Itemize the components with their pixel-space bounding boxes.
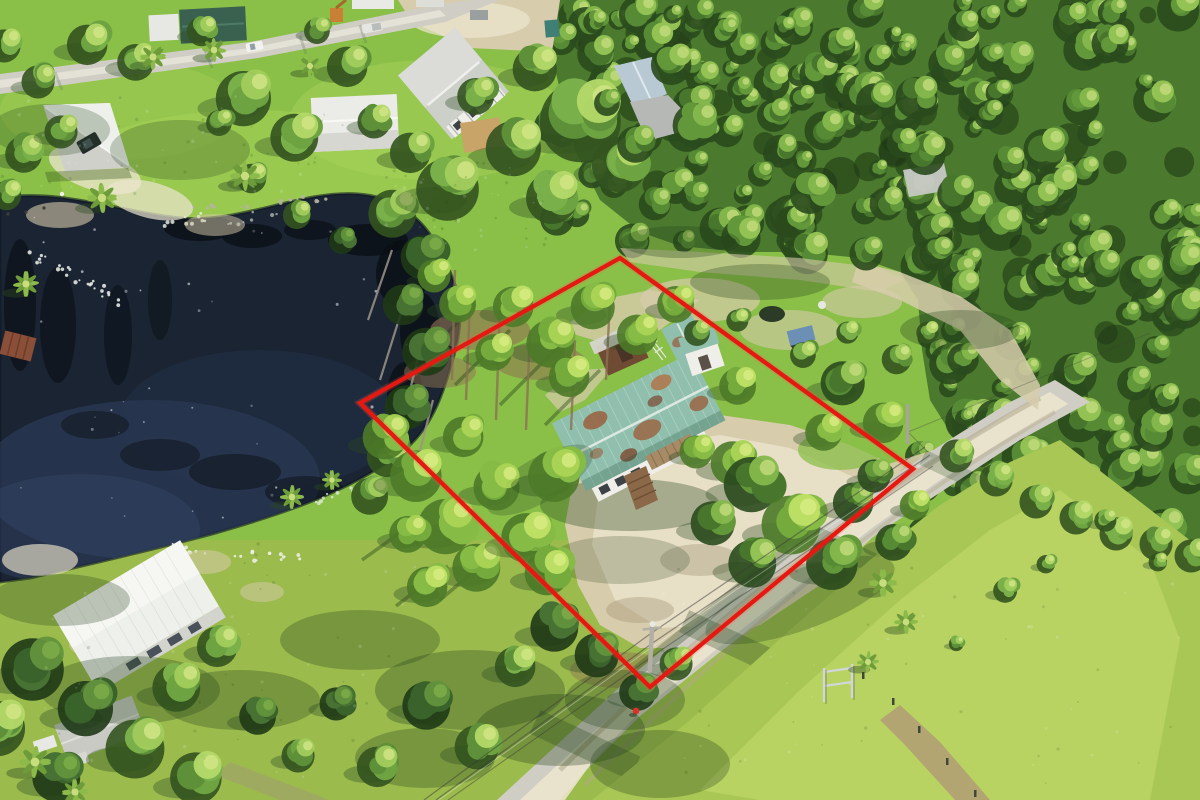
white-trailer — [148, 14, 179, 42]
white-ball — [60, 192, 64, 196]
orange-machine — [330, 8, 343, 22]
aerial-photo — [0, 0, 1200, 800]
aerial-photo-stage — [0, 0, 1200, 800]
teal-dumpster — [544, 19, 559, 37]
utility-pole-2 — [906, 404, 909, 444]
